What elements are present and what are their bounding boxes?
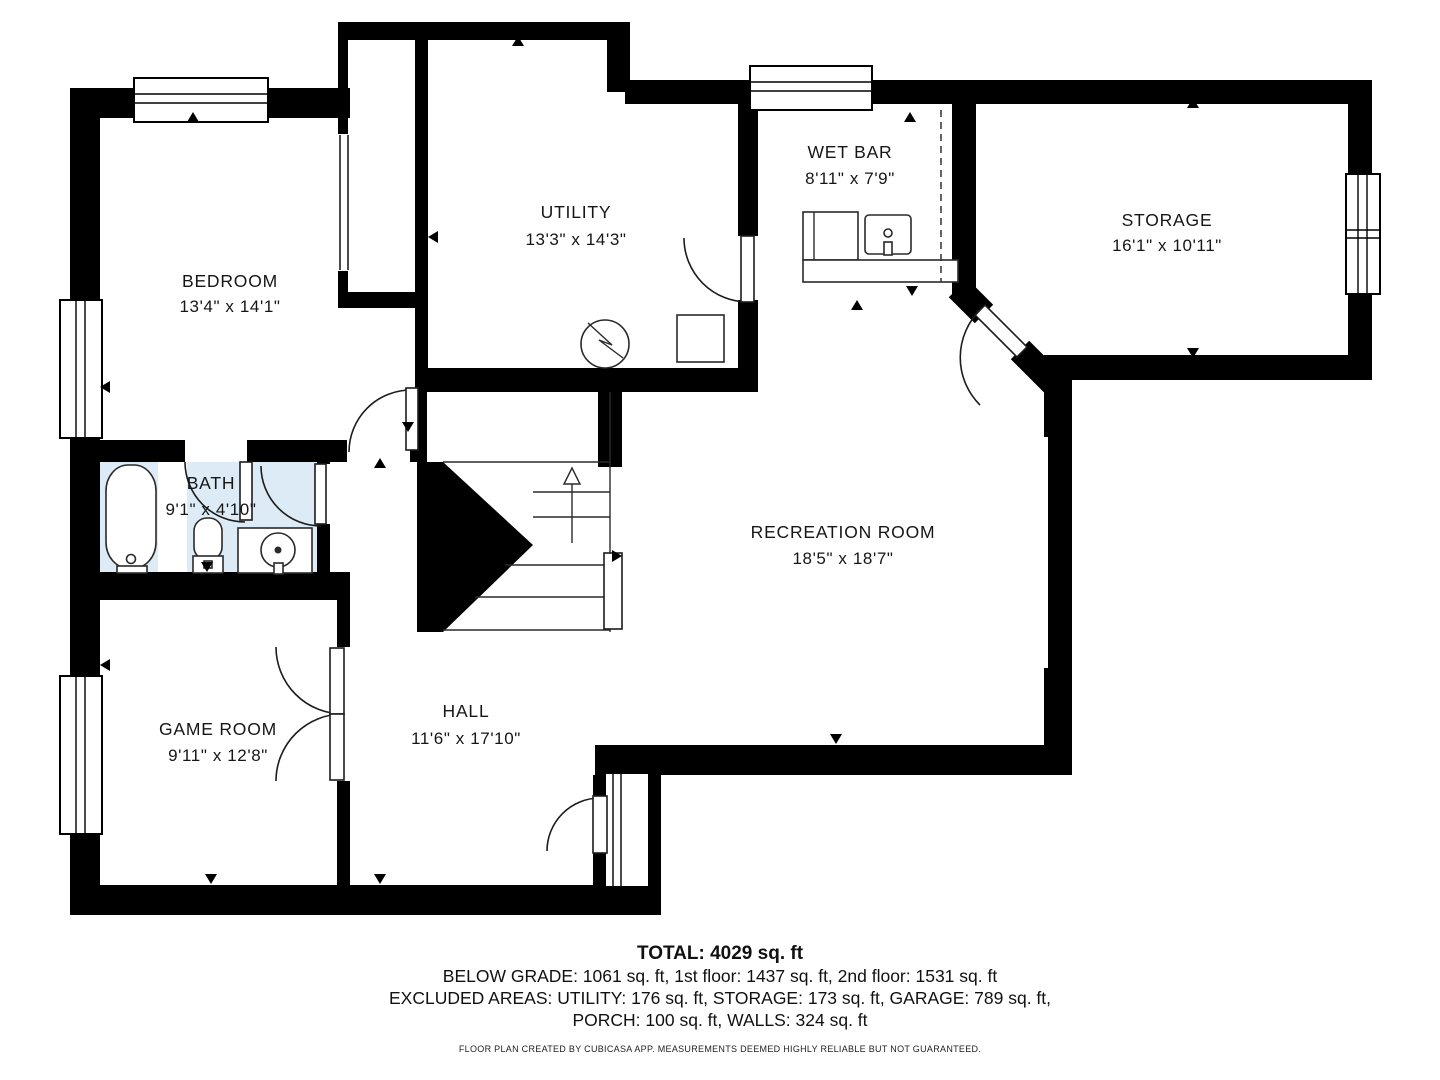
storage-label: STORAGE [1122,210,1213,230]
hall-entry-sidelight-window-icon [605,773,649,887]
floor-areas-text: BELOW GRADE: 1061 sq. ft, 1st floor: 143… [0,965,1440,987]
game-room-double-door-icon [276,647,344,781]
bedroom-left-window-icon [60,300,102,438]
room-closet [348,40,415,292]
appliance-icon [677,315,724,362]
utility-dims: 13'3" x 14'3" [525,230,626,249]
hall-exterior-door-icon [547,796,607,853]
hall-dims: 11'6" x 17'10" [411,729,521,748]
wet-bar-sink-icon [865,215,911,255]
game-room-left-window-icon [60,676,102,834]
wet-bar-fixtures [803,110,958,282]
utility-label: UTILITY [541,202,612,222]
recreation-dims: 18'5" x 18'7" [792,549,893,568]
wet-bar-top-window-icon [750,66,872,110]
bath-label: BATH [187,473,236,493]
closet-slider-icon [337,134,351,271]
room-game-room [100,600,337,885]
bathtub-icon [106,465,156,568]
storage-dims: 16'1" x 10'11" [1112,236,1222,255]
utility-fixtures [581,315,724,368]
bath-sink-icon [238,528,312,574]
stair-newel [604,553,622,629]
room-recreation [622,104,1048,745]
wet-bar-dims: 8'11" x 7'9" [805,169,895,188]
hall-label: HALL [443,701,490,721]
bedroom-door-icon [349,388,418,452]
storage-angled-door-icon [960,305,1027,405]
bedroom-top-window-icon [134,78,268,122]
footer-summary: TOTAL: 4029 sq. ft BELOW GRADE: 1061 sq.… [0,942,1440,1054]
water-heater-icon [581,320,629,368]
utility-door-icon [684,236,754,302]
floor-plan-page: BEDROOM 13'4" x 14'1" UTILITY 13'3" x 14… [0,0,1440,1080]
game-room-label: GAME ROOM [159,719,277,739]
recreation-label: RECREATION ROOM [751,522,936,542]
storage-right-window-icon [1346,174,1380,294]
disclaimer-text: FLOOR PLAN CREATED BY CUBICASA APP. MEAS… [0,1044,1440,1054]
bath-dims: 9'1" x 4'10" [166,500,257,519]
wet-bar-label: WET BAR [807,142,892,162]
wet-bar-counter-icon [803,260,958,282]
game-room-dims: 9'11" x 12'8" [168,746,268,765]
floor-plan-drawing: BEDROOM 13'4" x 14'1" UTILITY 13'3" x 14… [0,0,1440,1080]
total-area-text: TOTAL: 4029 sq. ft [0,942,1440,965]
bedroom-label: BEDROOM [182,271,278,291]
excluded-areas-text: EXCLUDED AREAS: UTILITY: 176 sq. ft, STO… [0,987,1440,1009]
excluded-areas-text2: PORCH: 100 sq. ft, WALLS: 324 sq. ft [0,1009,1440,1031]
stairs-up-arrow-icon [564,468,580,543]
bedroom-dims: 13'4" x 14'1" [179,297,280,316]
wet-bar-cabinet-icon [803,212,858,260]
